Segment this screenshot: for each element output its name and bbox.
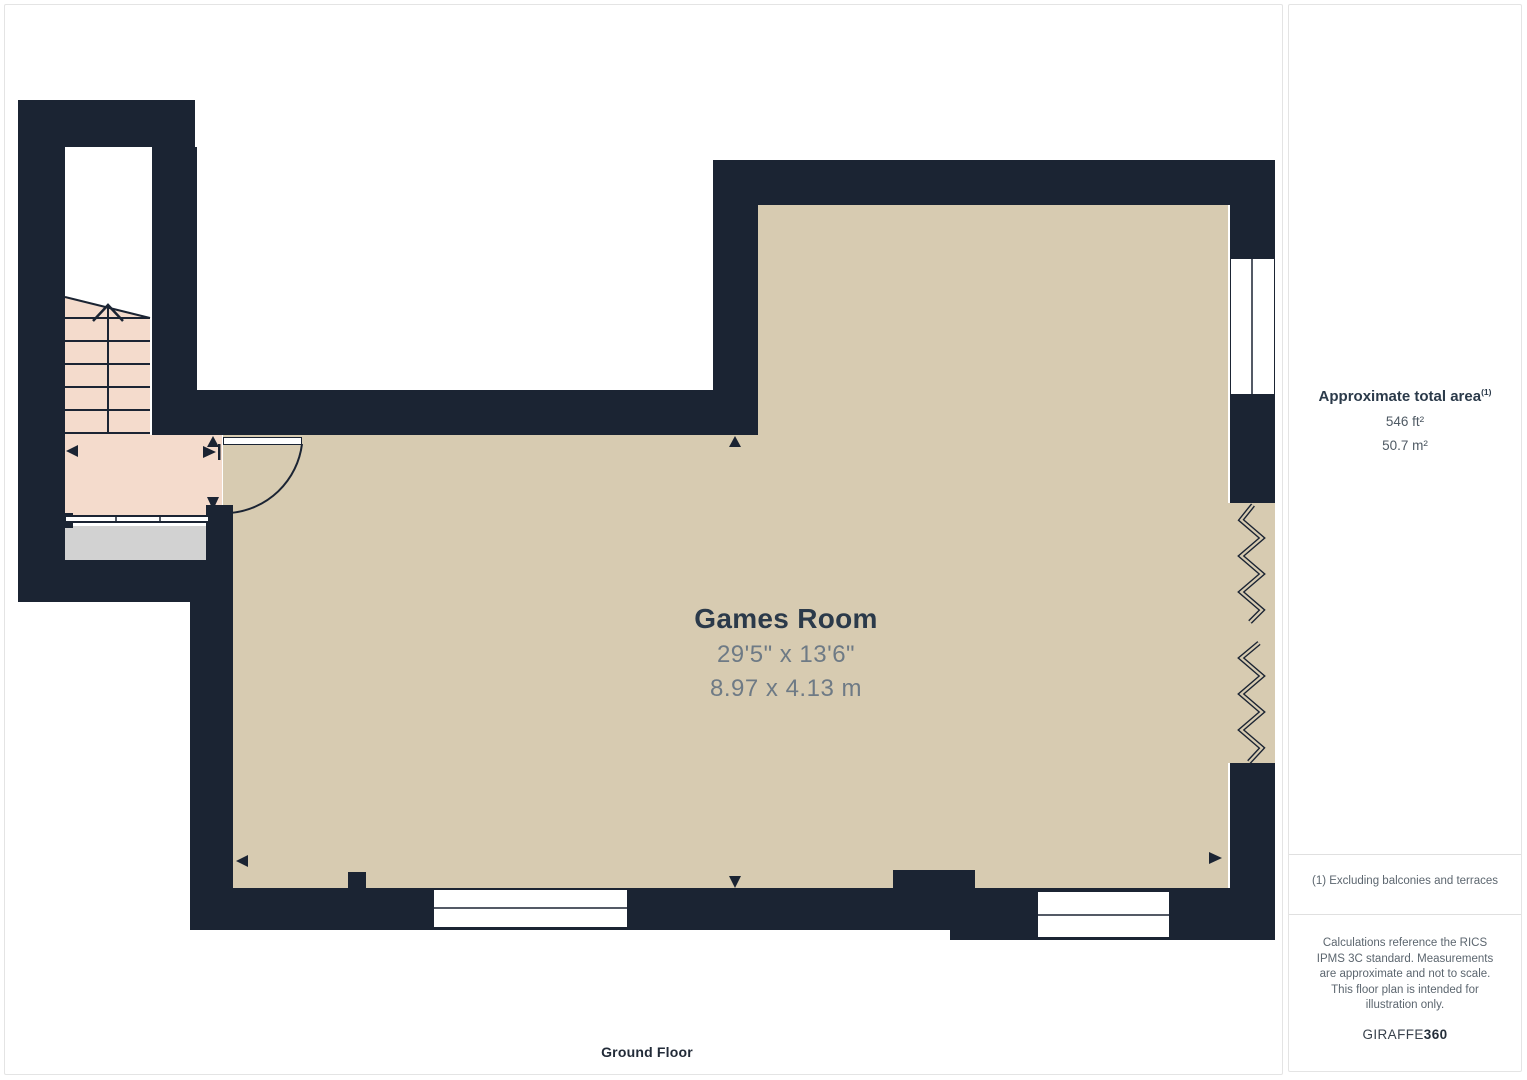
floorplan: Games Room 29'5" x 13'6" 8.97 x 4.13 m G… [0,0,1527,1080]
wall-stairblock-bottom [18,560,210,602]
games-room-floor-upper [758,205,1228,435]
stair-landing [65,435,222,516]
games-room-floor-doorway [223,435,235,516]
door-leaf [223,437,302,445]
wall-left [190,560,233,930]
floor-label: Ground Floor [497,1044,797,1060]
wall-mid-horizontal [152,390,758,435]
room-dim-imperial: 29'5" x 13'6" [636,641,936,669]
wall-top [713,160,1275,205]
wall-notch-bottom [348,872,366,888]
room-dim-metric: 8.97 x 4.13 m [636,675,936,703]
wall-stairblock-left [18,147,65,560]
games-room-floor-open-edge [1228,503,1275,763]
wall-protrusion-bottom [893,870,975,888]
room-name: Games Room [636,603,936,635]
wall-right-mid [1230,395,1275,503]
window-right-wall [1230,258,1275,395]
wall-door-stub [206,505,233,560]
room-label: Games Room 29'5" x 13'6" 8.97 x 4.13 m [636,603,936,703]
wall-right-upper [1230,205,1275,258]
wall-stairblock-right [152,147,197,390]
window-bottom-left [433,889,628,928]
staircase-treads-area [65,296,150,435]
window-bottom-right [1037,891,1170,938]
window-landing [66,515,208,523]
exterior-step-gray [65,526,217,560]
wall-stairblock-top [18,100,195,147]
